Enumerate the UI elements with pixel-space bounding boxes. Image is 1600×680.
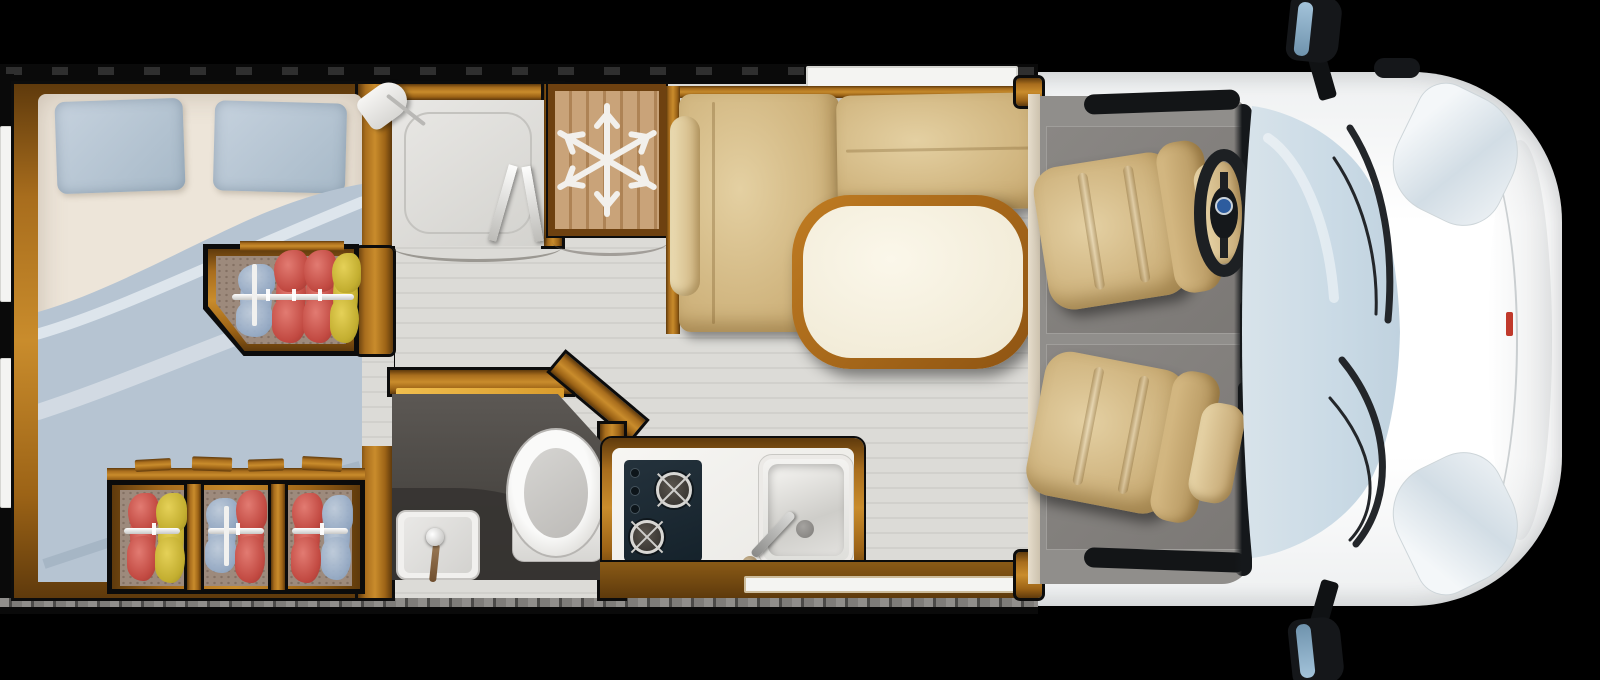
windshield xyxy=(1238,98,1413,566)
wardrobe-rail-1 xyxy=(124,528,180,534)
folded-item xyxy=(302,456,343,472)
motorhome-floorplan xyxy=(0,0,1600,680)
bench-seam xyxy=(712,102,715,324)
wardrobe-support xyxy=(224,506,229,566)
toilet-bowl-inner xyxy=(524,448,588,538)
entry-door-window xyxy=(744,576,1018,593)
bottom-step-ruler xyxy=(0,598,1038,607)
wardrobe-rail-2 xyxy=(208,528,264,534)
wardrobe-rail-3 xyxy=(292,528,348,534)
antenna-icon xyxy=(1374,58,1420,78)
divider-wood xyxy=(187,484,201,590)
mid-wardrobe-door xyxy=(357,248,393,354)
burner-top xyxy=(656,472,692,508)
burner-bottom xyxy=(630,520,664,554)
fridge-door-arc xyxy=(552,228,668,256)
clothes-red xyxy=(294,500,320,574)
basin-faucet-icon xyxy=(426,528,444,546)
hob-knob xyxy=(630,504,640,514)
front-red-badge xyxy=(1506,312,1513,336)
shower-door-arc xyxy=(392,232,562,262)
rear-window-top xyxy=(0,126,12,302)
clothes-red xyxy=(238,498,264,574)
folded-item xyxy=(192,456,232,471)
clothes-yellow xyxy=(158,500,184,574)
mirror-top-icon xyxy=(1285,0,1344,65)
fridge-snowflake-icon xyxy=(557,92,657,228)
mid-wardrobe-support xyxy=(252,264,257,326)
dinette-table-top xyxy=(803,206,1023,358)
clothes-red xyxy=(130,500,156,572)
folded-item xyxy=(248,458,284,471)
hob-knob xyxy=(630,486,640,496)
sink-drain xyxy=(796,520,814,538)
folded-item xyxy=(135,458,172,472)
hob-knob xyxy=(630,468,640,478)
rear-window-bottom xyxy=(0,358,12,508)
mirror-bottom-icon xyxy=(1287,615,1346,680)
shower-top-wall xyxy=(392,84,560,100)
clothes-blue xyxy=(208,504,236,566)
sink-basin xyxy=(768,464,844,556)
divider-wood xyxy=(271,484,285,590)
clothes-blue xyxy=(324,502,350,572)
mid-wardrobe-rail xyxy=(232,294,354,300)
dinette-armrest xyxy=(670,116,700,296)
